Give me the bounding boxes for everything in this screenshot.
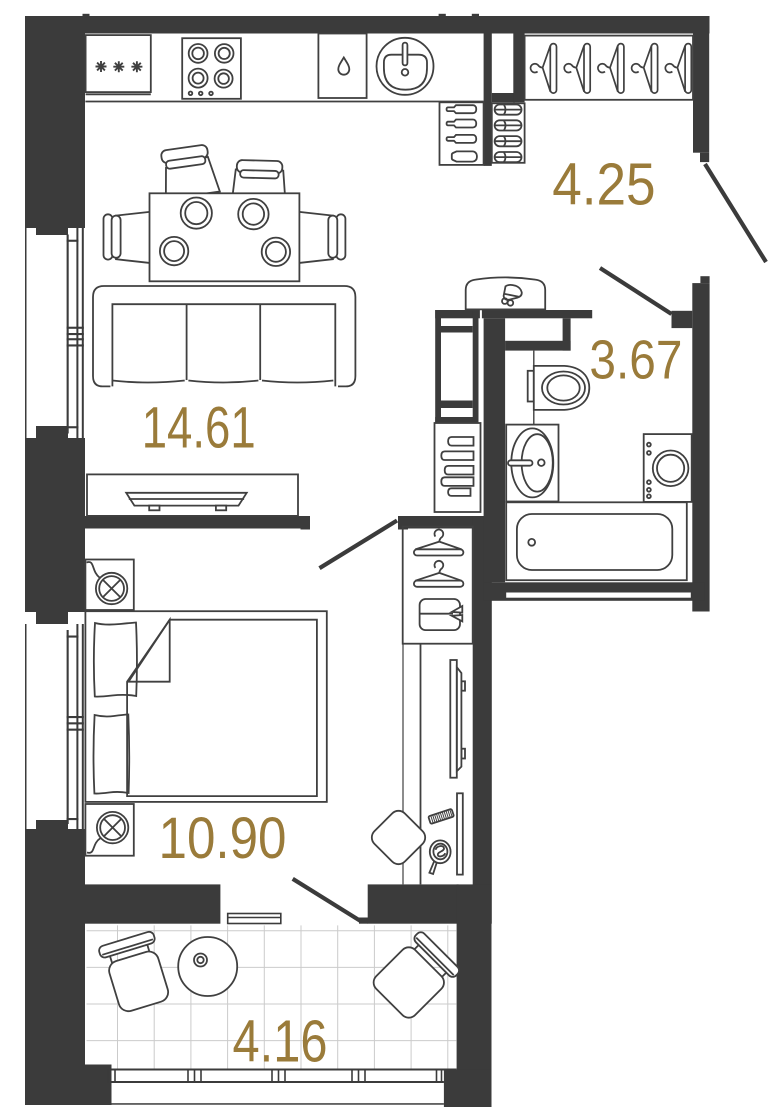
svg-text:4.16: 4.16 xyxy=(233,1009,328,1075)
svg-text:14.61: 14.61 xyxy=(142,396,256,461)
svg-text:10.90: 10.90 xyxy=(159,806,287,871)
svg-text:4.25: 4.25 xyxy=(552,152,655,218)
svg-text:3.67: 3.67 xyxy=(589,329,682,391)
